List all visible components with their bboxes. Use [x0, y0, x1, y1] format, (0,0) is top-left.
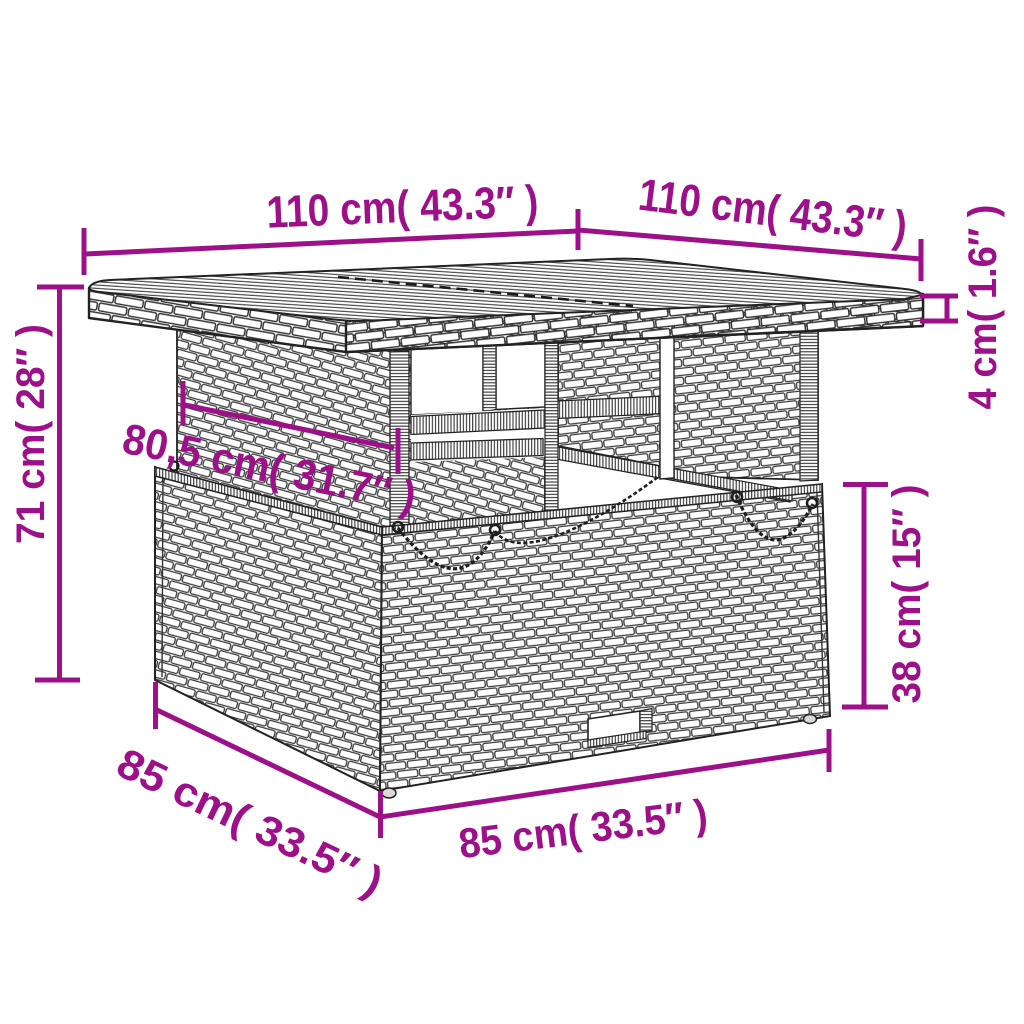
svg-text:71 cm( 28″ ): 71 cm( 28″ ) — [9, 324, 53, 544]
svg-text:4 cm( 1.6″ ): 4 cm( 1.6″ ) — [961, 205, 1005, 410]
svg-text:38 cm( 15″ ): 38 cm( 15″ ) — [885, 485, 929, 704]
